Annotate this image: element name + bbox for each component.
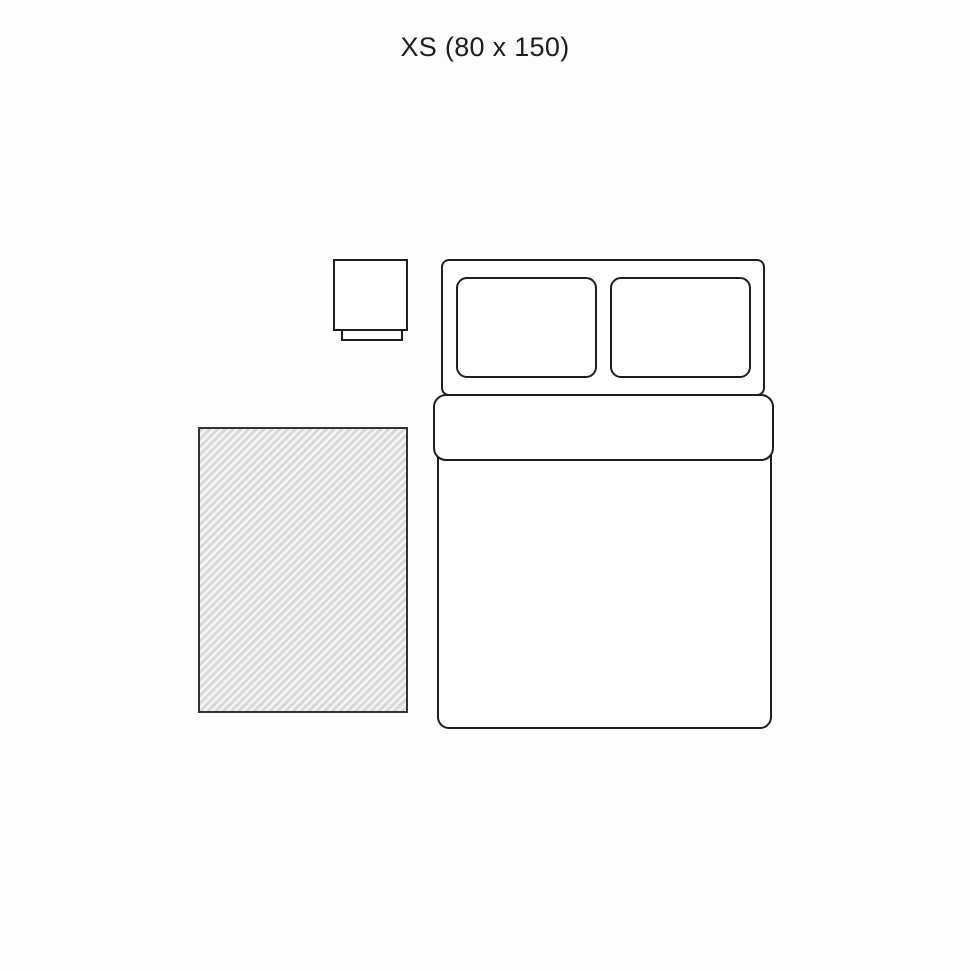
bedroom-floorplan [0,0,970,971]
bed-icon [433,259,774,730]
bed-pillow-area [441,259,765,396]
pillow-left-icon [456,277,597,378]
rug-icon [198,427,408,713]
nightstand-icon [333,259,408,342]
bed-duvet [437,452,772,729]
nightstand-top [333,259,408,331]
bed-sheet-fold [433,394,774,461]
rug-size-diagram: XS (80 x 150) [0,0,970,971]
pillow-right-icon [610,277,751,378]
